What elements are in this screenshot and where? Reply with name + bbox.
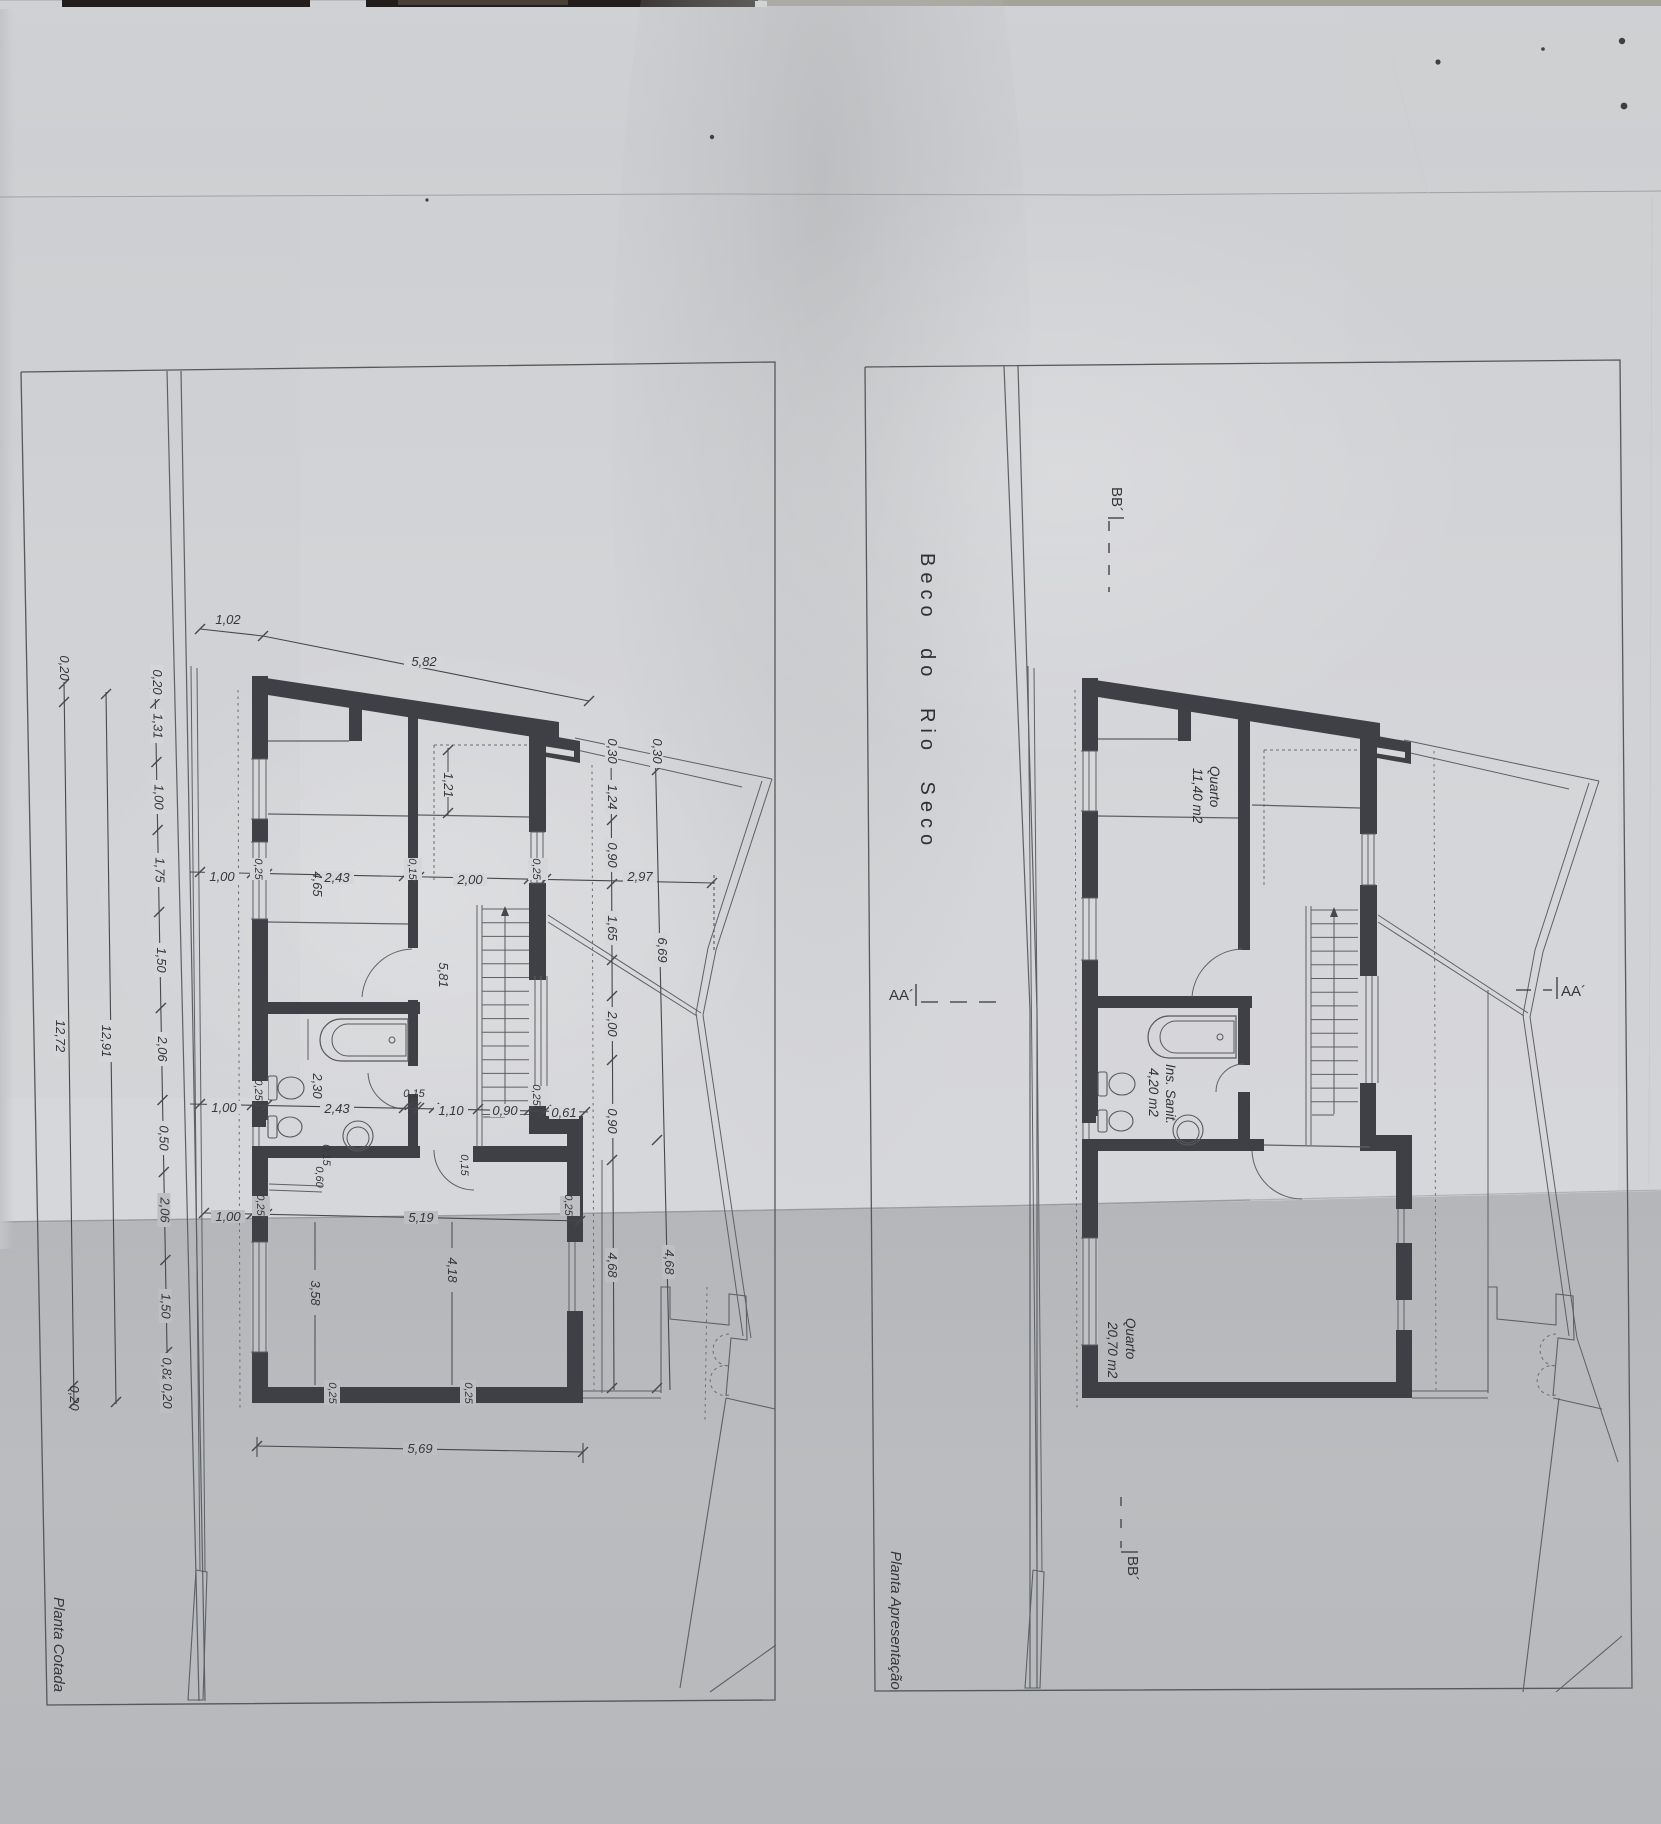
- svg-text:1,31: 1,31: [151, 713, 166, 738]
- svg-text:0,15: 0,15: [403, 1088, 425, 1100]
- svg-text:0,90: 0,90: [605, 1108, 620, 1134]
- svg-text:Planta Apresentação: Planta Apresentação: [887, 1551, 904, 1690]
- svg-text:Beco do Rio Seco: Beco do Rio Seco: [916, 553, 938, 851]
- svg-text:1,02: 1,02: [215, 612, 241, 627]
- svg-text:1,10: 1,10: [438, 1103, 464, 1118]
- svg-text:0,25: 0,25: [252, 858, 264, 880]
- svg-text:0,25: 0,25: [530, 1084, 542, 1106]
- svg-text:0,25: 0,25: [530, 858, 542, 880]
- svg-text:1,00: 1,00: [209, 869, 235, 884]
- svg-text:0,20: 0,20: [160, 1383, 175, 1409]
- svg-text:2,43: 2,43: [323, 870, 350, 885]
- svg-text:1,65: 1,65: [605, 915, 620, 941]
- svg-text:2,97: 2,97: [626, 869, 653, 884]
- svg-text:BB´: BB´: [1124, 1556, 1141, 1581]
- svg-text:1,00: 1,00: [211, 1100, 237, 1115]
- svg-text:Ins. Sanit.: Ins. Sanit.: [1163, 1064, 1178, 1124]
- svg-text:0,15: 0,15: [458, 1154, 470, 1176]
- svg-text:0,20: 0,20: [57, 655, 72, 681]
- svg-text:Planta Cotada: Planta Cotada: [50, 1597, 67, 1692]
- svg-text:0,50: 0,50: [156, 1125, 171, 1151]
- svg-text:4,65: 4,65: [310, 871, 325, 897]
- svg-text:20,70 m2: 20,70 m2: [1105, 1321, 1120, 1379]
- svg-text:0,60: 0,60: [313, 1166, 325, 1188]
- svg-text:5,81: 5,81: [436, 962, 451, 987]
- svg-text:0,90: 0,90: [605, 842, 620, 868]
- svg-text:1,50: 1,50: [154, 947, 169, 973]
- svg-text:4,68: 4,68: [605, 1252, 620, 1278]
- svg-text:5,82: 5,82: [411, 654, 437, 669]
- svg-text:5,69: 5,69: [407, 1441, 432, 1456]
- svg-text:0,15: 0,15: [406, 858, 418, 880]
- svg-text:11,40 m2: 11,40 m2: [1190, 768, 1205, 824]
- svg-text:6,69: 6,69: [655, 937, 670, 962]
- svg-text:BB´: BB´: [1108, 487, 1125, 512]
- svg-text:2,00: 2,00: [605, 1010, 620, 1037]
- svg-text:0,90: 0,90: [492, 1103, 518, 1118]
- svg-text:12,72: 12,72: [53, 1020, 68, 1053]
- svg-text:AA´: AA´: [889, 987, 914, 1004]
- svg-text:0,15: 0,15: [320, 1144, 332, 1166]
- svg-text:0,61: 0,61: [551, 1105, 576, 1120]
- svg-text:0,25: 0,25: [252, 1079, 264, 1101]
- svg-text:2,30: 2,30: [310, 1072, 325, 1099]
- svg-text:5,19: 5,19: [408, 1210, 433, 1225]
- svg-text:0,20: 0,20: [150, 669, 165, 695]
- svg-text:0,30: 0,30: [650, 738, 665, 764]
- svg-text:3,58: 3,58: [308, 1280, 323, 1306]
- svg-text:Quarto: Quarto: [1207, 766, 1222, 808]
- svg-text:2,43: 2,43: [323, 1101, 350, 1116]
- svg-text:AA´: AA´: [1561, 983, 1586, 1000]
- svg-text:0,25: 0,25: [326, 1382, 338, 1404]
- svg-text:0,20: 0,20: [67, 1385, 82, 1411]
- svg-text:12,91: 12,91: [99, 1025, 114, 1058]
- svg-text:2,06: 2,06: [157, 1196, 172, 1223]
- svg-text:4,68: 4,68: [662, 1249, 677, 1275]
- svg-text:1,21: 1,21: [441, 772, 456, 797]
- svg-text:1,24: 1,24: [605, 784, 620, 809]
- svg-text:0,25: 0,25: [462, 1382, 474, 1404]
- svg-text:1,50: 1,50: [159, 1293, 174, 1319]
- svg-text:1,75: 1,75: [153, 857, 168, 883]
- svg-text:4,20 m2: 4,20 m2: [1146, 1068, 1161, 1117]
- svg-text:2,06: 2,06: [155, 1035, 170, 1062]
- svg-text:1,00: 1,00: [215, 1209, 241, 1224]
- svg-text:0,30: 0,30: [605, 738, 620, 764]
- svg-text:0,25: 0,25: [562, 1194, 574, 1216]
- svg-text:2,00: 2,00: [456, 872, 483, 887]
- svg-text:Quarto: Quarto: [1123, 1318, 1138, 1360]
- svg-text:4,18: 4,18: [445, 1257, 460, 1283]
- svg-text:1,00: 1,00: [152, 784, 167, 810]
- svg-text:0,25: 0,25: [254, 1194, 266, 1216]
